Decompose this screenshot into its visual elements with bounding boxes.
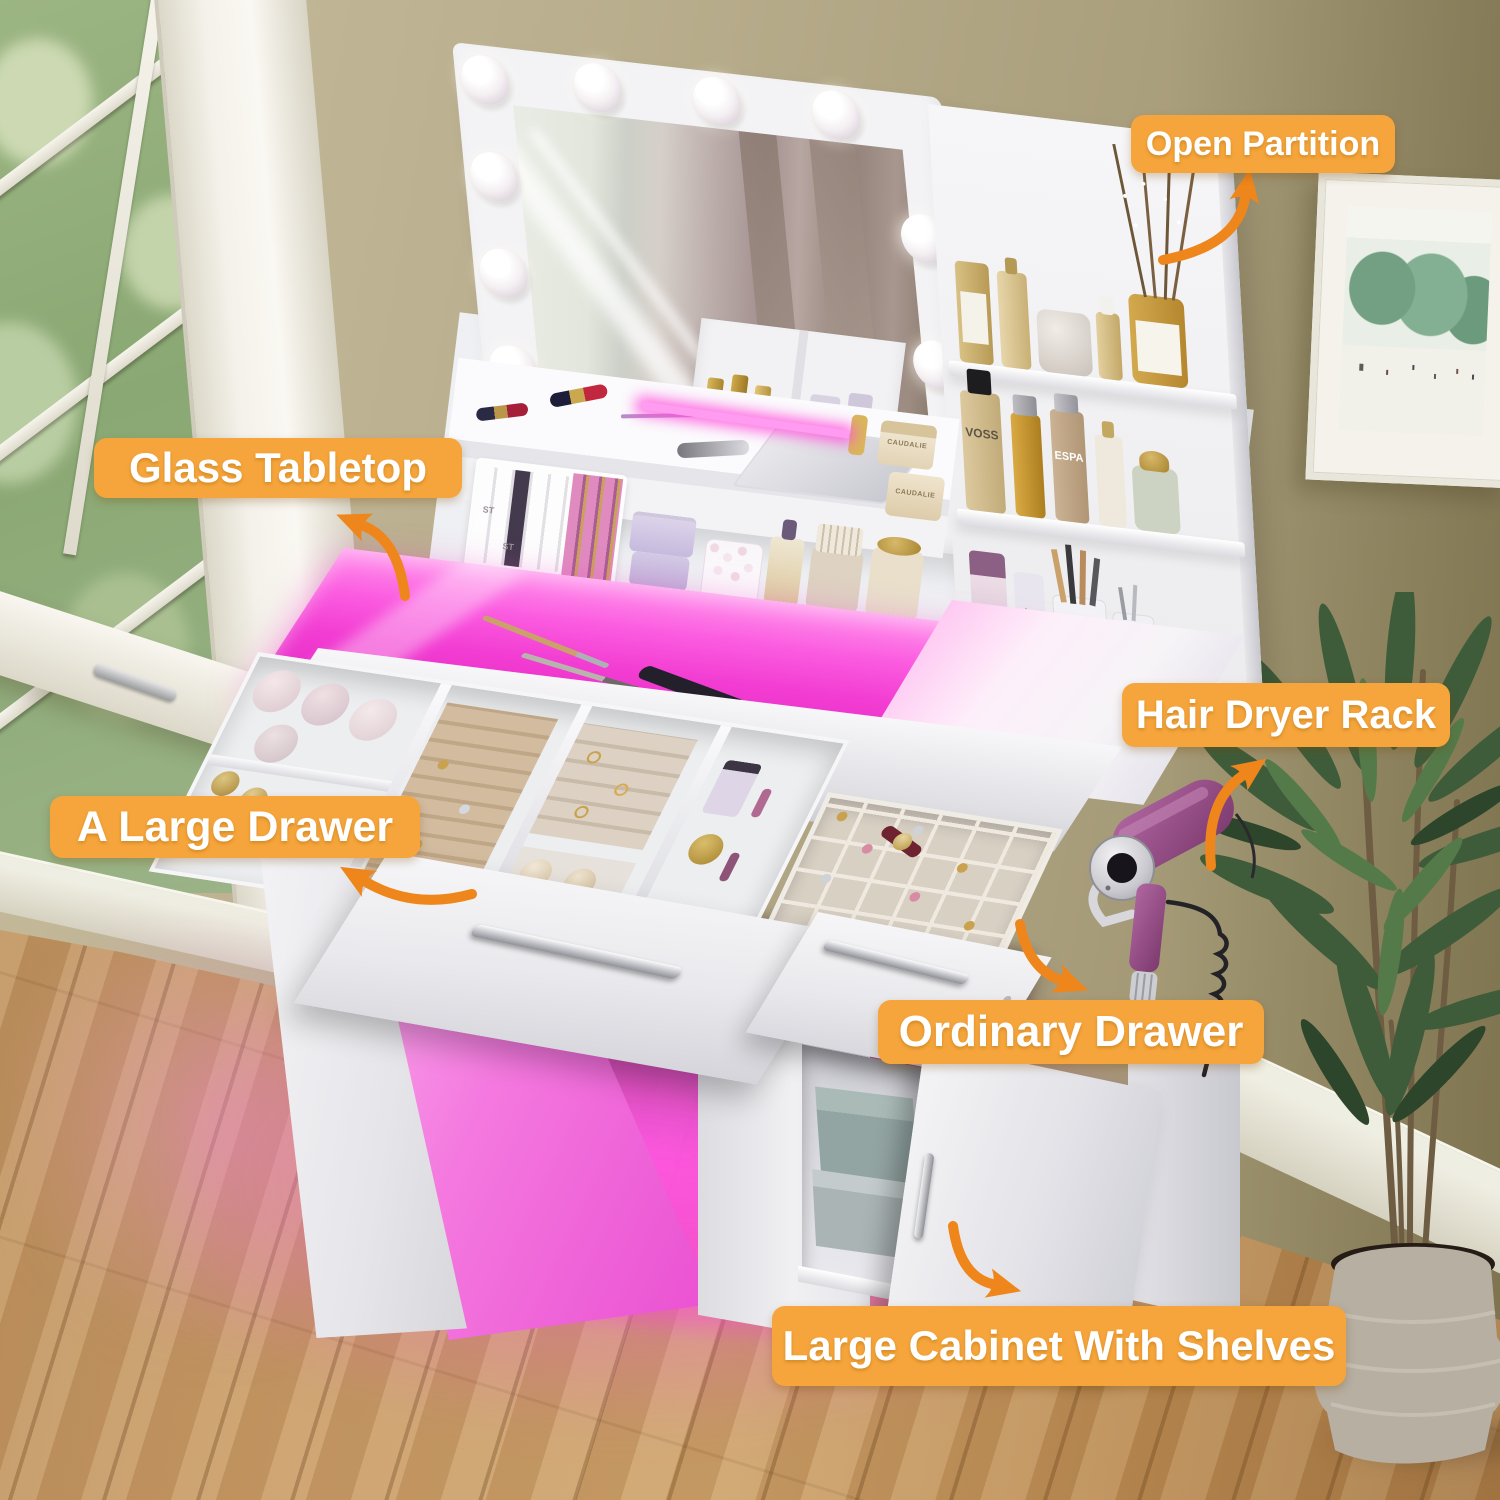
gold-cap [206,769,244,797]
powder-puff [293,681,357,729]
cream-jar [1036,308,1093,377]
gold-lid [876,535,922,558]
pump-bottle [996,270,1031,370]
callout-a-large-drawer: A Large Drawer [50,796,420,858]
painting-figures [1359,363,1363,370]
ring [612,782,631,796]
vanity-bulb [468,150,520,204]
powder-puff [245,667,309,715]
callout-label: Large Cabinet With Shelves [783,1322,1336,1370]
oil-bottle [1010,412,1046,519]
powder-puff [247,722,305,766]
lipstick [476,402,529,421]
dropper-top [781,519,797,541]
gold-lid [1139,449,1170,473]
gold-jar [683,832,730,867]
callout-hair-dryer-rack: Hair Dryer Rack [1122,683,1450,747]
pump-cap [1005,257,1018,275]
lipstick-bullets [561,473,623,582]
vanity-bulb [459,53,511,107]
hairspray-brand: VOSS [962,424,1003,443]
callout-ordinary-drawer: Ordinary Drawer [878,1000,1264,1064]
makeup-brush [1065,544,1076,604]
drawer-handle [469,924,684,980]
vanity-bulb [810,88,862,142]
skincare-brand: ESPA [1052,449,1086,465]
bottle-cap [1012,394,1037,417]
callout-open-partition: Open Partition [1131,115,1395,173]
skincare-bottle: ESPA [1050,409,1090,525]
jar-brand: CAUDALIE [879,438,935,452]
vanity-bulb [572,61,624,115]
perfume-bottle [954,260,993,365]
dryer-detail-dot [1106,886,1111,891]
dropper-perfume [763,536,805,608]
jewelry [436,759,451,770]
perfume-jar [1132,465,1181,535]
ring [572,805,591,819]
ring [584,750,603,764]
bottle-cap [1054,393,1079,414]
pump-bottle-white [1094,434,1127,529]
callout-large-cabinet-with-shelves: Large Cabinet With Shelves [772,1306,1346,1386]
callout-label: Open Partition [1146,125,1380,164]
cream-pot [864,546,924,622]
makeup-brush [1089,558,1100,607]
vanity-bulb [478,246,530,300]
lipstick-bullet [718,852,741,882]
diffuser-label [1135,320,1182,376]
hairspray-bottle: VOSS [960,390,1006,514]
dryer-cord-upper [1236,814,1254,878]
annotated-product-photo: VOSS ESPA gloss [0,0,1500,1500]
dryer-face-center [1107,853,1137,883]
wall-art-painting [1339,206,1493,436]
callout-label: Ordinary Drawer [899,1007,1244,1057]
jewelry [457,804,472,815]
tool [1132,585,1138,622]
swab-cup [805,545,864,615]
reed-diffuser [1128,293,1189,389]
cotton-swabs [815,523,864,556]
bottle-label [960,291,989,345]
lipstick-bullet [750,788,773,818]
drawer-handle [821,940,970,986]
vanity-bulb [691,74,743,128]
dropper-bottle [1095,311,1123,381]
dropper-cap [1099,296,1114,316]
powder-puff [341,696,405,744]
cream-jar: CAUDALIE [877,420,938,470]
callout-label: Glass Tabletop [129,444,427,492]
babys-breath-flowers [1115,171,1189,260]
pump-cap [1102,421,1115,439]
dryer-handle [1125,883,1167,1005]
lipstick [549,383,609,408]
tool [1118,587,1127,620]
cosmetic-tube [677,440,750,459]
jar-lid [881,420,938,439]
hairspray-cap [966,368,991,395]
callout-label: A Large Drawer [77,803,393,852]
callout-glass-tabletop: Glass Tabletop [94,438,462,498]
makeup-brush [1079,550,1086,605]
wall-art-frame [1305,172,1500,489]
bottle-cap [969,550,1006,579]
makeup-brush [1051,549,1067,602]
callout-label: Hair Dryer Rack [1136,693,1436,738]
cabinet-door-handle [914,1152,935,1239]
